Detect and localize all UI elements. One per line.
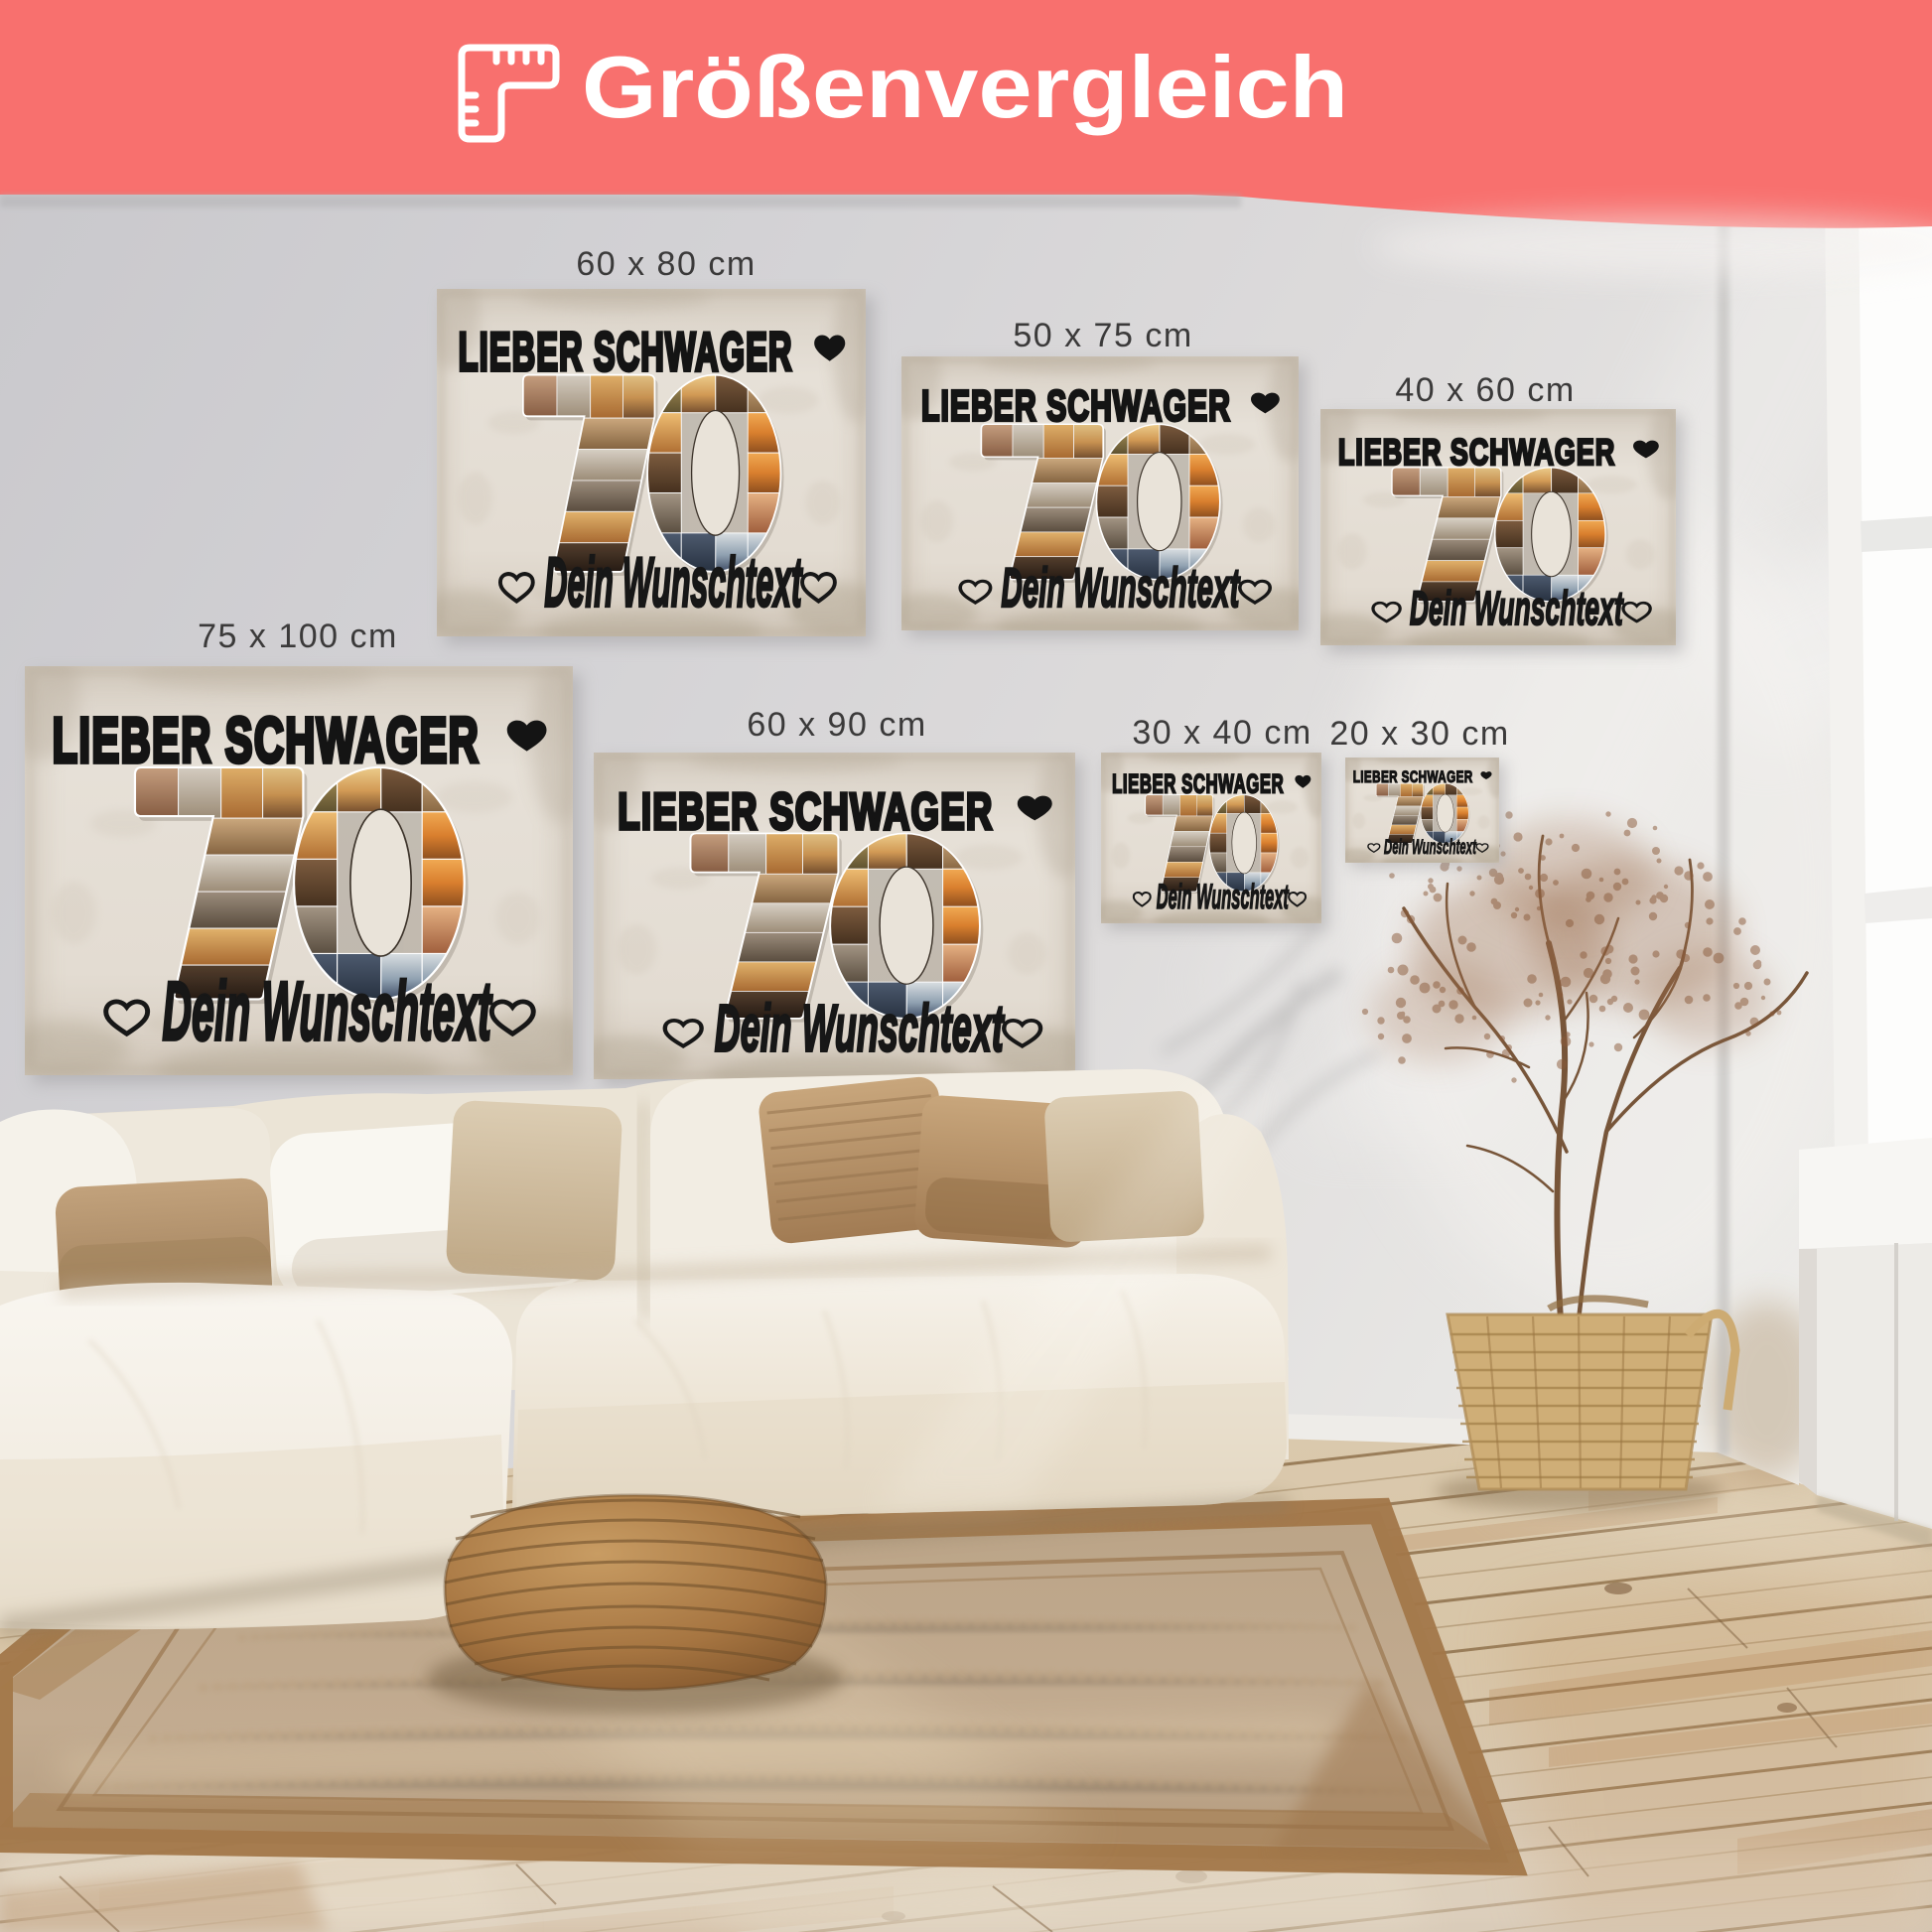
- svg-text:40 x 60 cm: 40 x 60 cm: [1395, 371, 1575, 409]
- svg-text:50 x 75 cm: 50 x 75 cm: [1013, 317, 1192, 354]
- svg-text:Größenvergleich: Größenvergleich: [582, 38, 1348, 136]
- svg-text:60 x 80 cm: 60 x 80 cm: [576, 245, 756, 283]
- svg-text:20 x 30 cm: 20 x 30 cm: [1329, 715, 1509, 753]
- svg-text:75 x 100 cm: 75 x 100 cm: [198, 618, 398, 655]
- svg-text:60 x 90 cm: 60 x 90 cm: [747, 706, 926, 744]
- svg-text:30 x 40 cm: 30 x 40 cm: [1132, 714, 1311, 752]
